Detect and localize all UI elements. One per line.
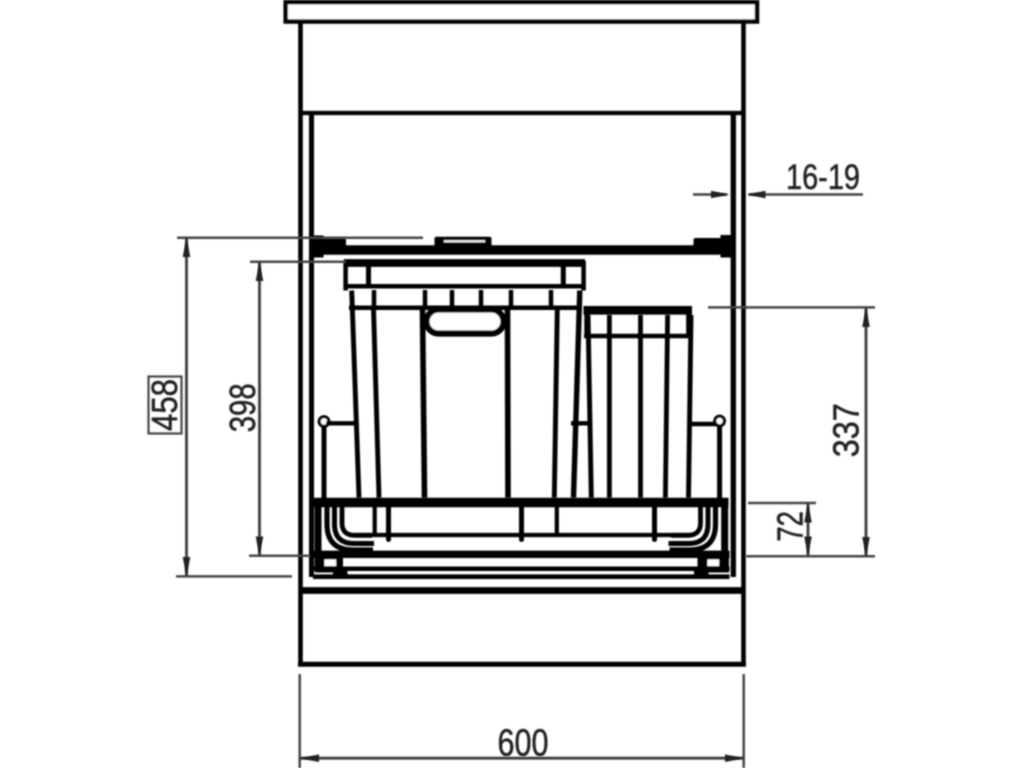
svg-text:398: 398 [222,383,263,432]
svg-text:16-19: 16-19 [786,157,860,197]
svg-text:72: 72 [770,511,811,542]
svg-text:458: 458 [144,379,185,431]
svg-text:337: 337 [826,403,867,457]
svg-text:600: 600 [498,723,549,765]
